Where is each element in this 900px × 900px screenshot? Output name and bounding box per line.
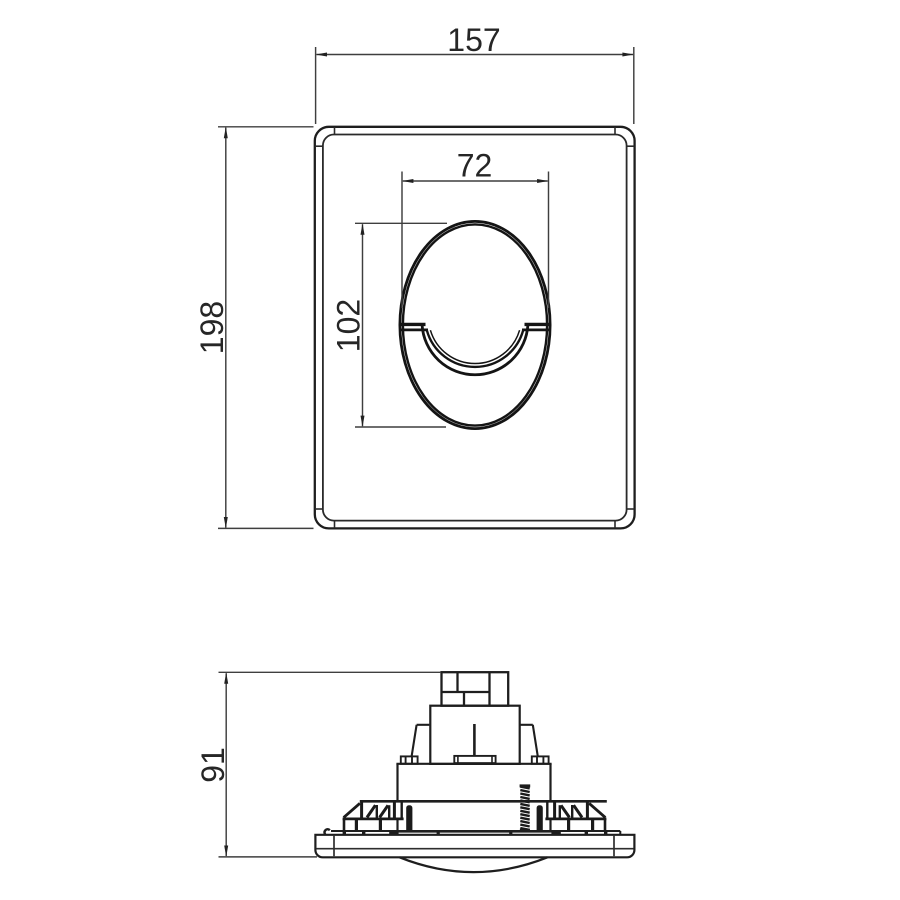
svg-text:72: 72 [457, 148, 493, 184]
svg-text:102: 102 [331, 299, 367, 352]
svg-text:91: 91 [195, 747, 231, 783]
svg-text:198: 198 [194, 301, 230, 354]
svg-text:157: 157 [447, 22, 500, 58]
